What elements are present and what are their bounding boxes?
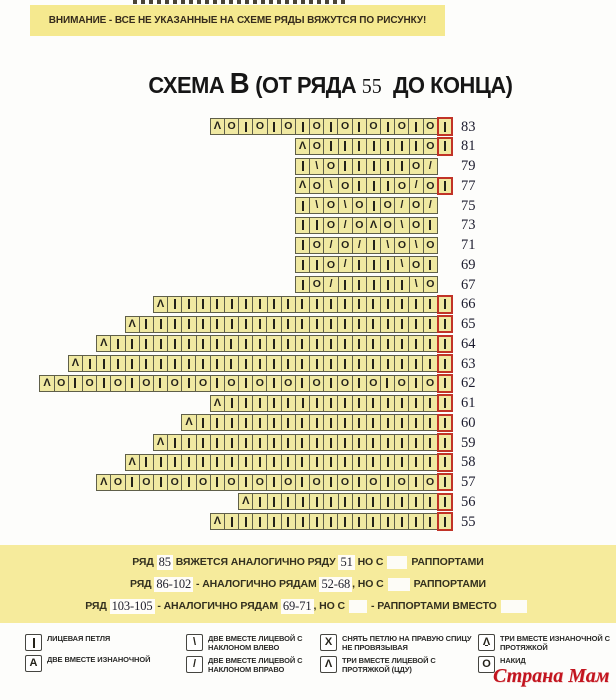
knit-stitch-icon — [330, 122, 332, 132]
knit-stitch-icon — [344, 280, 346, 290]
knit-stitch-icon — [202, 299, 204, 309]
chart-cell: / — [409, 177, 424, 194]
chart-cell — [238, 296, 253, 313]
chart-row: Λ — [238, 493, 452, 511]
yarn-over-icon: O — [426, 279, 434, 290]
chart-cell — [352, 256, 367, 273]
knit-stitch-icon — [216, 339, 218, 349]
knit-stitch-icon — [387, 181, 389, 191]
page: ВНИМАНИЕ - ВСЕ НЕ УКАЗАННЫЕ НА СХЕМЕ РЯД… — [0, 0, 616, 700]
chart-row: O/\O — [295, 256, 437, 273]
chart-cell: O — [224, 375, 239, 392]
chart-cell — [267, 434, 282, 451]
k2tog-right-icon: / — [415, 180, 418, 191]
chart-row: Λ — [153, 434, 452, 452]
chart-cell — [394, 138, 409, 155]
chart-cell — [366, 434, 381, 451]
yarn-over-icon: O — [284, 378, 292, 389]
chart-row: Λ — [96, 335, 452, 353]
chart-cell: Λ — [125, 316, 140, 333]
knit-stitch-icon — [216, 359, 218, 369]
knit-stitch-icon — [401, 359, 403, 369]
yarn-over-icon: O — [426, 181, 434, 192]
knit-stitch-icon — [160, 319, 162, 329]
knit-stitch-icon — [429, 319, 431, 329]
knit-stitch-icon — [429, 517, 431, 527]
knit-stitch-icon — [245, 339, 247, 349]
knit-stitch-icon — [230, 359, 232, 369]
knit-stitch-icon — [415, 319, 417, 329]
chart-cell — [352, 316, 367, 333]
knit-stitch-icon — [273, 398, 275, 408]
k2tog-right-icon: / — [193, 659, 196, 670]
k2tog-left-icon: \ — [386, 240, 389, 251]
knit-stitch-icon — [231, 418, 233, 428]
chart-cell — [252, 395, 267, 412]
chart-cell — [181, 474, 196, 491]
knit-stitch-icon — [444, 457, 446, 467]
chart-cell: Λ — [96, 335, 111, 352]
knit-stitch-icon — [330, 299, 332, 309]
knit-stitch-icon — [444, 378, 446, 388]
chart-cell — [337, 395, 352, 412]
knit-stitch-icon — [245, 457, 247, 467]
chart-cell — [196, 335, 211, 352]
knit-stitch-icon — [372, 299, 374, 309]
knit-stitch-icon — [344, 359, 346, 369]
chart-cell: O — [423, 118, 438, 135]
chart-cell: O — [196, 474, 211, 491]
chart-cell — [380, 118, 395, 135]
knit-stitch-icon — [259, 319, 261, 329]
chart-cell: O — [224, 474, 239, 491]
knit-stitch-icon — [216, 438, 218, 448]
k3tog-cdd-icon: Λ — [100, 338, 107, 349]
yarn-over-icon: O — [482, 659, 491, 670]
chart-cell: O — [409, 158, 424, 175]
chart-row: Λ — [210, 513, 452, 531]
row-number: 64 — [461, 336, 491, 353]
knit-stitch-icon — [358, 161, 360, 171]
chart-cell — [380, 296, 395, 313]
chart-cell — [380, 395, 395, 412]
p2tog-icon: A — [25, 655, 42, 672]
yarn-over-icon: O — [313, 240, 321, 251]
knit-stitch-icon — [444, 517, 446, 527]
chart-cell — [408, 335, 423, 352]
yarn-over-icon: O — [284, 121, 292, 132]
chart-cell — [408, 375, 423, 392]
chart-cell — [380, 276, 395, 293]
k2tog-left-icon: \ — [344, 200, 347, 211]
knit-stitch-icon — [415, 438, 417, 448]
chart-cell — [423, 414, 438, 431]
knit-stitch-icon — [302, 260, 304, 270]
chart-cell — [352, 474, 367, 491]
chart-cell — [394, 355, 409, 372]
note-row-number: 69-71 — [281, 599, 314, 614]
chart-cell-highlighted — [437, 295, 453, 314]
chart-cell — [238, 316, 253, 333]
chart-cell: Λ — [68, 355, 83, 372]
chart-cell: O — [309, 276, 324, 293]
knit-stitch-icon — [231, 438, 233, 448]
knit-stitch-icon — [373, 181, 375, 191]
knit-stitch-icon — [401, 398, 403, 408]
chart-cell — [352, 375, 367, 392]
knit-stitch-icon — [188, 319, 190, 329]
knit-stitch-icon — [188, 299, 190, 309]
chart-cell — [238, 375, 253, 392]
knit-stitch-icon — [429, 339, 431, 349]
chart-cell — [281, 296, 296, 313]
knit-stitch-icon — [131, 477, 133, 487]
chart-cell — [281, 335, 296, 352]
chart-row: O/\O — [295, 276, 437, 293]
knit-stitch-icon — [202, 339, 204, 349]
knit-stitch-icon — [373, 161, 375, 171]
chart-cell: Λ — [153, 434, 168, 451]
chart-cell — [266, 355, 281, 372]
chart-cell — [210, 375, 225, 392]
legend-column: XСНЯТЬ ПЕТЛЮ НА ПРАВУЮ СПИЦУ НЕ ПРОВЯЗЫВ… — [320, 634, 472, 674]
chart-cell — [366, 454, 381, 471]
legend-label: СНЯТЬ ПЕТЛЮ НА ПРАВУЮ СПИЦУ НЕ ПРОВЯЗЫВА… — [342, 634, 472, 652]
knit-stitch-icon — [372, 359, 374, 369]
chart-row: ΛOO — [295, 138, 452, 156]
chart-cell: Λ — [39, 375, 54, 392]
k3tog-cdd-icon: Λ — [157, 299, 164, 310]
chart-cell: Λ — [153, 296, 168, 313]
chart-cell — [423, 454, 438, 471]
chart-cell — [266, 316, 281, 333]
chart-cell — [323, 316, 338, 333]
chart-cell: O — [409, 197, 424, 214]
chart-cell — [210, 434, 225, 451]
chart-row: \OO/ — [295, 158, 437, 175]
knit-stitch-icon — [301, 438, 303, 448]
k2tog-right-icon: / — [329, 279, 332, 290]
chart-cell — [352, 177, 367, 194]
note-text: НО С — [355, 556, 384, 568]
chart-cell — [210, 355, 225, 372]
chart-cell: O — [252, 474, 267, 491]
chart-cell — [181, 296, 196, 313]
chart-cell: Λ — [210, 118, 225, 135]
knit-stitch-icon — [287, 319, 289, 329]
k2tog-right-icon: / — [344, 220, 347, 231]
chart-cell-highlighted — [437, 335, 453, 354]
chart-cell — [125, 355, 140, 372]
knit-stitch-icon — [316, 438, 318, 448]
k3tog-cdd-icon: Λ — [214, 516, 221, 527]
k2tog-left-icon: \ — [400, 220, 403, 231]
knit-stitch-icon — [273, 438, 275, 448]
chart-cell — [267, 414, 282, 431]
chart-cell: / — [423, 158, 438, 175]
knit-stitch-icon — [373, 240, 375, 250]
chart-cell — [196, 296, 211, 313]
knit-stitch-icon — [302, 240, 304, 250]
k3tog-cdd-icon: Λ — [185, 417, 192, 428]
knit-stitch-icon — [273, 418, 275, 428]
chart-cell — [394, 395, 409, 412]
chart-cell — [309, 296, 324, 313]
chart-cell: O — [110, 375, 125, 392]
chart-cell — [380, 513, 395, 530]
k3tog-cdd-icon: Λ — [320, 656, 337, 673]
chart-cell — [323, 414, 338, 431]
knit-stitch-icon — [174, 438, 176, 448]
chart-row: ΛO\OO/O — [295, 177, 452, 195]
chart-cell: O — [323, 217, 338, 234]
chart-cell — [380, 177, 395, 194]
chart-cell: O — [54, 375, 69, 392]
knit-stitch-icon — [231, 299, 233, 309]
chart-cell: O — [309, 177, 324, 194]
chart-cell: / — [323, 276, 338, 293]
chart-cell — [423, 217, 438, 234]
chart-cell — [281, 493, 296, 510]
knit-stitch-icon — [103, 359, 105, 369]
note-line: РЯД 85 ВЯЖЕТСЯ АНАЛОГИЧНО РЯДУ 51 НО СРА… — [132, 555, 483, 570]
note-row-number: 86-102 — [154, 577, 193, 592]
knit-stitch-icon — [387, 161, 389, 171]
chart-cell — [337, 434, 352, 451]
chart-cell: O — [352, 197, 367, 214]
chart-cell: / — [338, 256, 353, 273]
knit-stitch-icon — [429, 299, 431, 309]
k3tog-cdd-icon: Λ — [129, 319, 136, 330]
yarn-over-icon: O — [57, 378, 65, 389]
chart-cell: O — [323, 256, 338, 273]
chart-cell: \ — [309, 158, 324, 175]
knit-stitch-icon — [358, 438, 360, 448]
knit-stitch-icon — [387, 280, 389, 290]
knit-stitch-icon — [387, 477, 389, 487]
knit-stitch-icon — [344, 161, 346, 171]
chart-cell: O — [366, 118, 381, 135]
erased-number-gap — [501, 600, 527, 613]
knit-stitch-icon — [160, 457, 162, 467]
knit-stitch-icon — [372, 319, 374, 329]
chart-cell — [210, 414, 225, 431]
knit-stitch-icon — [259, 418, 261, 428]
knit-stitch-icon — [216, 378, 218, 388]
chart-cell — [196, 454, 211, 471]
note-text: , НО С — [352, 578, 384, 590]
knit-stitch-icon — [316, 319, 318, 329]
knit-stitch-icon — [273, 122, 275, 132]
yarn-over-icon: O — [384, 220, 392, 231]
knit-stitch-icon — [287, 438, 289, 448]
yarn-over-icon: O — [341, 378, 349, 389]
chart-cell — [167, 454, 182, 471]
chart-cell — [408, 434, 423, 451]
yarn-over-icon: O — [398, 121, 406, 132]
note-row-number: 103-105 — [110, 599, 155, 614]
chart-cell — [366, 158, 381, 175]
chart-cell — [196, 316, 211, 333]
row-number: 65 — [461, 316, 491, 333]
chart-row: Λ — [181, 414, 451, 432]
knit-stitch-icon — [372, 517, 374, 527]
chart-cell: O — [309, 375, 324, 392]
k2tog-right-icon: / — [429, 200, 432, 211]
chart-cell — [281, 395, 296, 412]
knit-stitch-icon — [89, 359, 91, 369]
chart-cell — [323, 375, 338, 392]
knit-stitch-icon — [259, 398, 261, 408]
knit-stitch-icon — [231, 398, 233, 408]
k2tog-right-icon: / — [429, 161, 432, 172]
chart-row: \O\OO/O/ — [295, 197, 437, 214]
chart-cell — [309, 513, 324, 530]
knit-stitch-icon — [259, 438, 261, 448]
chart-cell — [210, 296, 225, 313]
knit-stitch-icon — [287, 418, 289, 428]
knit-stitch-icon — [188, 477, 190, 487]
knit-stitch-icon — [358, 517, 360, 527]
legend-label: ТРИ ВМЕСТЕ ЛИЦЕВОЙ С ПРОТЯЖКОЙ (ЦДУ) — [342, 656, 472, 674]
row-number: 79 — [461, 158, 491, 175]
knit-stitch-icon — [344, 141, 346, 151]
chart-cell — [352, 355, 367, 372]
chart-cell — [210, 316, 225, 333]
chart-cell: O — [252, 375, 267, 392]
knit-stitch-icon — [358, 280, 360, 290]
knit-stitch-icon — [401, 457, 403, 467]
knit-stitch-icon — [444, 141, 446, 151]
chart-cell: O — [423, 237, 438, 254]
yarn-over-icon: O — [171, 477, 179, 488]
knit-stitch-icon — [330, 457, 332, 467]
chart-cell — [153, 316, 168, 333]
chart-cell — [295, 256, 310, 273]
p2tog-icon: A — [30, 658, 38, 669]
chart-cell — [238, 118, 253, 135]
chart-cell — [295, 217, 310, 234]
chart-cell — [252, 434, 267, 451]
knit-stitch-icon — [287, 398, 289, 408]
chart-cell — [139, 355, 154, 372]
chart-cell: / — [338, 217, 353, 234]
knit-stitch-icon — [259, 299, 261, 309]
knit-stitch-icon — [415, 418, 417, 428]
knit-stitch-icon — [174, 457, 176, 467]
chart-cell — [309, 395, 324, 412]
chart-cell — [309, 335, 324, 352]
knit-stitch-icon — [401, 418, 403, 428]
note-line: РЯД 86-102 - АНАЛОГИЧНО РЯДАМ 52-68, НО … — [130, 577, 486, 592]
k3tog-cdd-icon: Λ — [72, 358, 79, 369]
knit-stitch-icon — [160, 339, 162, 349]
knit-stitch-icon — [202, 438, 204, 448]
knit-stitch-icon — [387, 457, 389, 467]
knit-stitch-icon — [302, 220, 304, 230]
k3tog-cdd-icon: Λ — [242, 496, 249, 507]
yarn-over-icon: O — [313, 141, 321, 152]
knit-stitch-icon — [401, 280, 403, 290]
chart-cell: O — [281, 474, 296, 491]
k2tog-left-icon: \ — [415, 240, 418, 251]
knit-stitch-icon — [259, 497, 261, 507]
chart-cell — [352, 158, 367, 175]
chart-cell: / — [394, 197, 409, 214]
chart-cell — [266, 335, 281, 352]
knit-stitch-icon — [387, 517, 389, 527]
knit-stitch-icon — [358, 418, 360, 428]
chart-cell: O — [394, 474, 409, 491]
knit-stitch-icon — [245, 477, 247, 487]
knit-stitch-icon — [387, 319, 389, 329]
chart-row: Λ — [68, 355, 452, 373]
legend-label: ДВЕ ВМЕСТЕ ЛИЦЕВОЙ С НАКЛОНОМ ВПРАВО — [208, 656, 312, 674]
chart-cell — [423, 395, 438, 412]
chart-cell: Λ — [295, 177, 310, 194]
yarn-over-icon: O — [426, 477, 434, 488]
chart-cell — [295, 454, 310, 471]
yarn-over-icon: O — [142, 378, 150, 389]
knit-stitch-icon — [245, 438, 247, 448]
knit-stitch-icon — [330, 378, 332, 388]
chart-cell — [352, 276, 367, 293]
k3tog-cdd-icon: Λ — [129, 457, 136, 468]
chart-cell — [423, 335, 438, 352]
knit-stitch-icon — [301, 477, 303, 487]
k2tog-left-icon: \ — [186, 634, 203, 651]
chart-cell: O — [224, 118, 239, 135]
legend-item: ΛТРИ ВМЕСТЕ ЛИЦЕВОЙ С ПРОТЯЖКОЙ (ЦДУ) — [320, 656, 472, 674]
chart-cell — [323, 434, 338, 451]
chart-cell — [394, 316, 409, 333]
chart-cell: O — [309, 138, 324, 155]
chart-cell: O — [139, 474, 154, 491]
chart-cell — [224, 395, 239, 412]
chart-cell — [181, 434, 196, 451]
knit-stitch-icon — [273, 457, 275, 467]
chart-cell: \ — [409, 237, 424, 254]
knit-stitch-icon — [231, 457, 233, 467]
knit-stitch-icon — [174, 299, 176, 309]
chart-row: Λ — [125, 316, 452, 334]
chart-cell: O — [394, 177, 409, 194]
knit-stitch-icon — [330, 497, 332, 507]
chart-cell — [224, 335, 239, 352]
knit-stitch-icon — [188, 359, 190, 369]
knit-stitch-icon — [316, 339, 318, 349]
chart-cell: O — [309, 118, 324, 135]
legend-item: AДВЕ ВМЕСТЕ ИЗНАНОЧНОЙ — [25, 655, 180, 672]
knit-stitch-icon — [429, 260, 431, 270]
k3tog-cdd-icon: Λ — [100, 477, 107, 488]
chart-cell: Λ — [210, 513, 225, 530]
knit-stitch-icon — [429, 457, 431, 467]
chart-cell — [394, 454, 409, 471]
row-number: 81 — [461, 138, 491, 155]
knit-stitch-icon — [401, 141, 403, 151]
knit-stitch-icon — [330, 359, 332, 369]
chart-cell — [153, 454, 168, 471]
chart-cell: O — [338, 237, 353, 254]
chart-cell — [337, 335, 352, 352]
chart-cell — [408, 355, 423, 372]
k2tog-left-icon: \ — [315, 200, 318, 211]
k3tog-cdd-icon: Λ — [370, 220, 377, 231]
knit-stitch-icon — [444, 418, 446, 428]
chart-cell — [352, 138, 367, 155]
chart-cell: O — [366, 375, 381, 392]
